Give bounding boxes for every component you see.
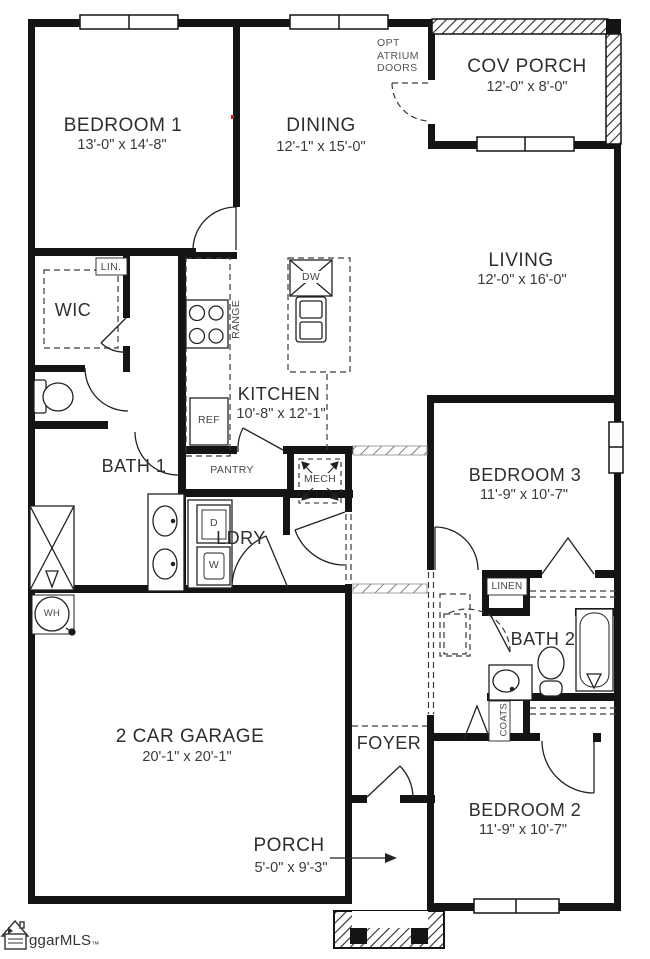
kitchen-sink-icon: [296, 297, 326, 342]
cased-openings: [353, 446, 427, 593]
hall-closet-door: [295, 512, 345, 565]
room-label-porch: PORCH: [253, 835, 324, 857]
toilet-icon: [34, 380, 73, 413]
mls-logo: ggarMLS™: [29, 932, 99, 949]
porch-arrow: [330, 853, 397, 863]
room-label-cov-porch: COV PORCH: [467, 56, 587, 78]
label-pantry: PANTRY: [209, 464, 254, 476]
room-label-wic: WIC: [55, 300, 92, 321]
room-label-dining: DINING: [286, 115, 356, 137]
room-dims-bedroom2: 11'-9" x 10'-7": [479, 822, 567, 838]
room-label-bedroom1: BEDROOM 1: [64, 115, 183, 137]
label-washer: W: [208, 559, 220, 571]
vanity2-icon: [489, 665, 532, 700]
window-dining: [290, 15, 388, 29]
label-linen: LINEN: [491, 581, 524, 592]
toilet-room-door: [85, 368, 128, 411]
room-label-ldry: LDRY: [216, 528, 266, 549]
shower-icon: [30, 506, 74, 590]
room-label-bath2: BATH 2: [511, 629, 576, 650]
label-lin: LIN.: [100, 261, 122, 273]
window-porch: [477, 137, 574, 151]
label-mech: MECH: [303, 473, 337, 485]
room-label-living: LIVING: [488, 250, 553, 272]
atrium-door-swing: [392, 83, 430, 121]
label-coats: COATS: [498, 703, 511, 737]
label-range: RANGE: [229, 300, 243, 339]
opt-atrium-doors-note: OPT ATRIUM DOORS: [377, 37, 419, 75]
room-dims-bedroom3: 11'-9" x 10'-7": [480, 487, 568, 503]
range-icon: [186, 300, 228, 348]
room-dims-bedroom1: 13'-0" x 14'-8": [77, 137, 166, 153]
room-label-garage: 2 CAR GARAGE: [116, 726, 265, 748]
room-label-foyer: FOYER: [357, 733, 422, 754]
window-bedroom3: [609, 422, 623, 473]
pantry-door: [238, 428, 283, 452]
mls-logo-trademark: ™: [91, 940, 99, 949]
room-label-bedroom2: BEDROOM 2: [469, 800, 582, 821]
room-label-bath1: BATH 1: [102, 456, 167, 477]
bedroom1-door: [193, 207, 236, 250]
window-bedroom1: [80, 15, 178, 29]
room-dims-dining: 12'-1" x 15'-0": [276, 139, 365, 155]
room-label-bedroom3: BEDROOM 3: [469, 465, 582, 486]
mls-logo-house-icon: [2, 921, 28, 949]
label-water-heater: WH: [43, 608, 61, 619]
window-bedroom2: [474, 899, 559, 913]
bathtub-icon: [576, 609, 613, 691]
label-dw: DW: [301, 271, 321, 283]
bedroom3-closet-bifold: [542, 538, 594, 574]
room-dims-porch: 5'-0" x 9'-3": [254, 860, 327, 876]
front-door: [366, 766, 413, 798]
floorplan-page: BEDROOM 1 13'-0" x 14'-8" DINING 12'-1" …: [0, 0, 650, 959]
bedroom3-door: [435, 527, 478, 570]
label-dryer: D: [209, 517, 219, 529]
label-ref: REF: [197, 414, 221, 426]
wic-door: [101, 318, 126, 352]
room-dims-living: 12'-0" x 16'-0": [477, 272, 566, 288]
double-vanity-icon: [148, 494, 184, 591]
room-dims-cov-porch: 12'-0" x 8'-0": [486, 79, 567, 95]
toilet2-icon: [538, 647, 564, 696]
bath2-door: [490, 614, 510, 652]
room-dims-kitchen: 10'-8" x 12'-1": [236, 406, 325, 422]
bedroom2-door: [542, 741, 594, 793]
room-label-kitchen: KITCHEN: [238, 384, 321, 405]
mls-logo-text: ggarMLS: [29, 932, 91, 949]
porch-step: [334, 911, 444, 948]
room-dims-garage: 20'-1" x 20'-1": [142, 749, 231, 765]
